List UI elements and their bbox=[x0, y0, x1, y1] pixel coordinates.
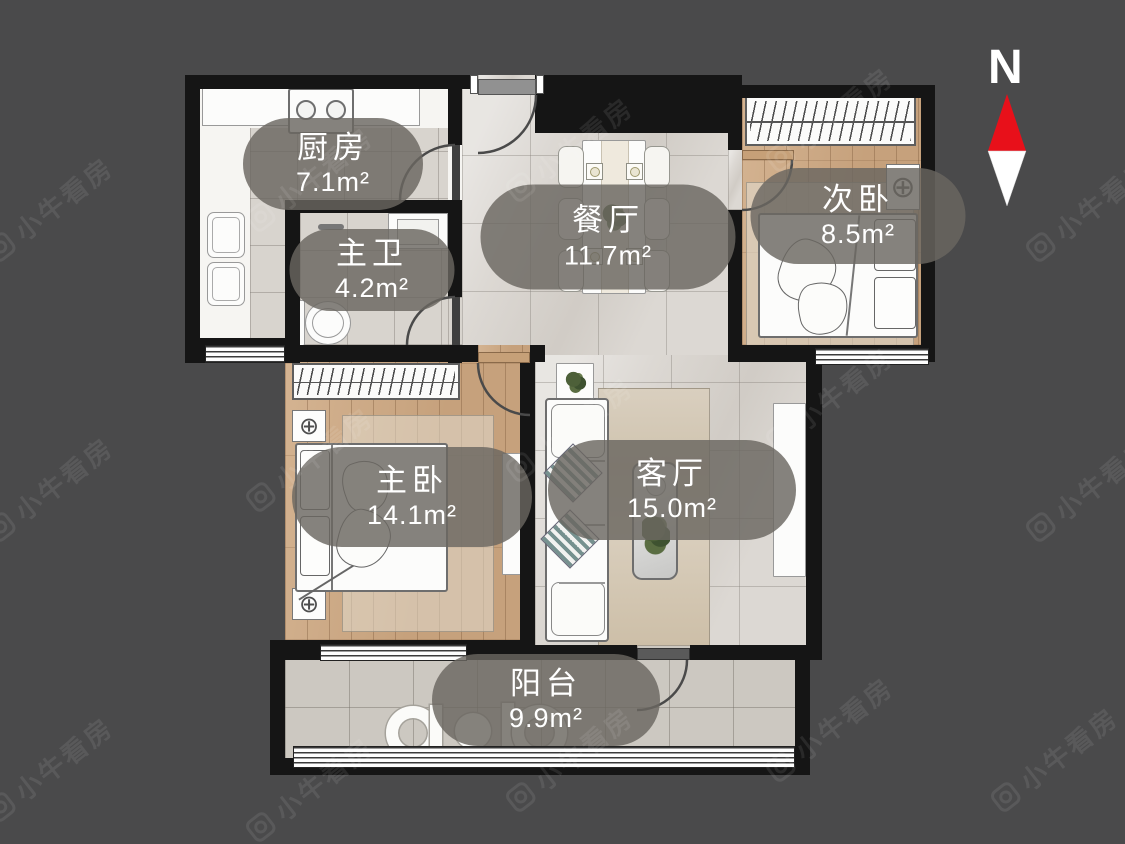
stove-burner bbox=[326, 100, 346, 120]
room-area: 11.7m² bbox=[564, 240, 652, 271]
room-label-master-bath: 主卫 4.2m² bbox=[290, 229, 455, 311]
watermark-logo-icon bbox=[988, 779, 1023, 814]
wall bbox=[448, 88, 462, 145]
compass-needle-icon bbox=[988, 94, 1026, 206]
room-label-master-bedroom: 主卧 14.1m² bbox=[292, 447, 532, 547]
room-name: 主卧 bbox=[376, 463, 448, 499]
watermark: 小牛看房 bbox=[985, 698, 1125, 820]
entry-door-leaf bbox=[478, 79, 536, 95]
bedroom2-wardrobe bbox=[745, 96, 916, 146]
watermark: 小牛看房 bbox=[0, 708, 121, 830]
room-label-balcony: 阳台 9.9m² bbox=[432, 654, 660, 746]
master-door-leaf bbox=[478, 352, 530, 363]
room-name: 主卫 bbox=[336, 236, 408, 272]
entry-door-arc bbox=[478, 95, 536, 153]
wall bbox=[690, 645, 810, 660]
wall bbox=[728, 133, 742, 150]
room-name: 餐厅 bbox=[572, 203, 644, 239]
compass-north-label: N bbox=[988, 40, 1023, 95]
wall bbox=[742, 85, 935, 98]
room-label-kitchen: 厨房 7.1m² bbox=[243, 118, 423, 210]
master-nightstand: ⊕ bbox=[292, 410, 326, 442]
watermark-logo-icon bbox=[503, 779, 538, 814]
room-name: 厨房 bbox=[297, 130, 369, 166]
wall bbox=[530, 345, 545, 362]
kitchen-sink-lower bbox=[207, 262, 245, 306]
room-name: 客厅 bbox=[636, 456, 708, 492]
room-label-dining: 餐厅 11.7m² bbox=[481, 185, 736, 290]
place-setting bbox=[586, 163, 603, 180]
room-area: 15.0m² bbox=[627, 493, 717, 524]
bedroom2-door-opening bbox=[728, 150, 742, 210]
wall bbox=[270, 640, 285, 775]
room-label-living: 客厅 15.0m² bbox=[548, 440, 796, 540]
bedroom2-door-leaf bbox=[742, 150, 794, 160]
watermark-logo-icon bbox=[1023, 509, 1058, 544]
bedroom2-pillow bbox=[874, 277, 916, 329]
watermark: 小牛看房 bbox=[0, 428, 121, 550]
entry-jamb bbox=[536, 75, 544, 94]
master-wardrobe bbox=[292, 363, 460, 400]
bedroom2-window bbox=[815, 348, 929, 365]
floor-plan-canvas: ⊕ ⊕ ⊕ bbox=[0, 0, 1125, 844]
entry-jamb bbox=[470, 75, 478, 94]
room-name: 阳台 bbox=[510, 666, 582, 702]
dining-chair bbox=[558, 146, 584, 188]
wall bbox=[270, 345, 478, 362]
room-area: 4.2m² bbox=[335, 273, 409, 304]
living-plant-table bbox=[556, 363, 594, 399]
watermark-logo-icon bbox=[243, 809, 278, 844]
balcony-window bbox=[293, 746, 795, 768]
room-area: 14.1m² bbox=[367, 500, 457, 531]
watermark: 小牛看房 bbox=[1020, 428, 1125, 550]
watermark-logo-icon bbox=[0, 509, 18, 544]
kitchen-window bbox=[205, 345, 285, 363]
watermark-logo-icon bbox=[243, 479, 278, 514]
dining-chair bbox=[644, 146, 670, 188]
watermark-logo-icon bbox=[1023, 229, 1058, 264]
master-window bbox=[320, 644, 467, 661]
room-name: 次卧 bbox=[822, 182, 894, 218]
room-label-second-bedroom: 次卧 8.5m² bbox=[751, 168, 966, 264]
room-area: 8.5m² bbox=[821, 219, 895, 250]
wall bbox=[535, 75, 742, 133]
room-area: 9.9m² bbox=[509, 703, 583, 734]
stove-burner bbox=[296, 100, 316, 120]
room-area: 7.1m² bbox=[296, 167, 370, 198]
wall bbox=[185, 75, 200, 363]
watermark-logo-icon bbox=[0, 229, 18, 264]
balcony-door-leaf bbox=[637, 648, 690, 660]
wall bbox=[185, 75, 478, 89]
master-door-arc bbox=[478, 363, 530, 415]
kitchen-sink-upper bbox=[207, 212, 245, 258]
watermark: 小牛看房 bbox=[0, 148, 121, 270]
watermark-logo-icon bbox=[0, 789, 18, 824]
place-setting bbox=[626, 163, 643, 180]
wall bbox=[795, 650, 810, 775]
watermark: 小牛看房 bbox=[1020, 148, 1125, 270]
wall bbox=[806, 355, 822, 660]
